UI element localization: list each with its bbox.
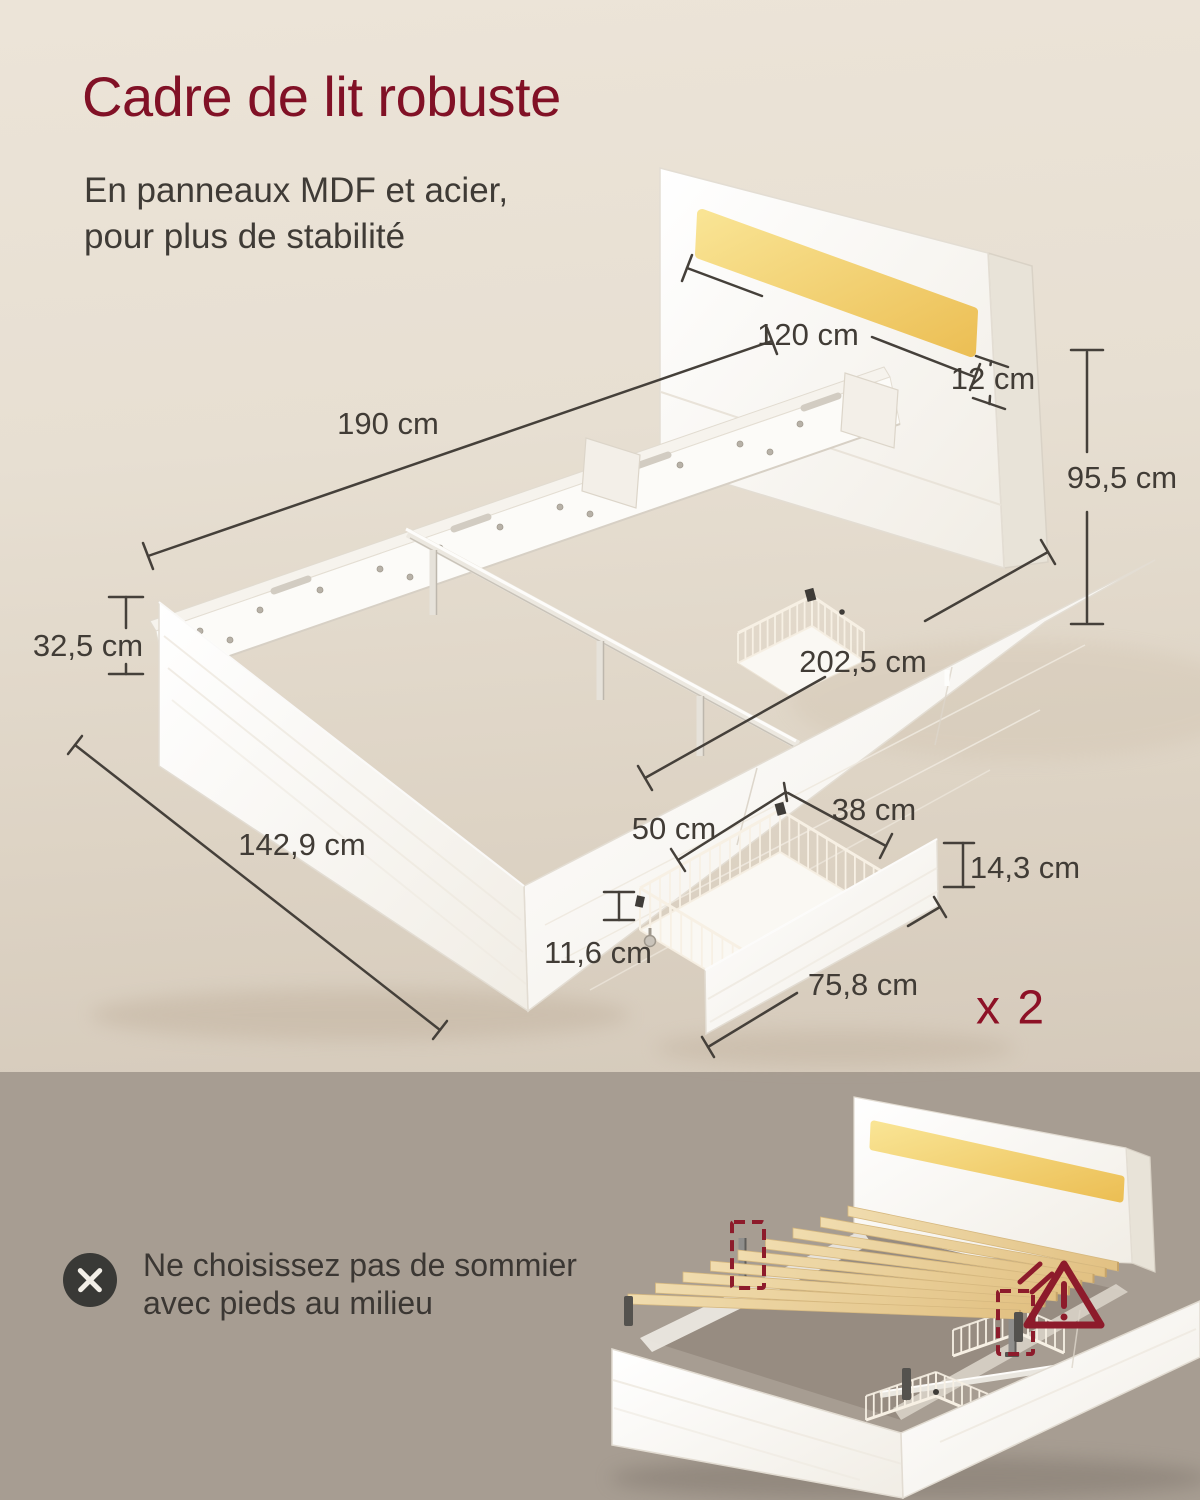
center-rail	[406, 529, 800, 756]
center-rail-leg	[433, 550, 704, 756]
product-infographic: Cadre de lit robuste En panneaux MDF et …	[0, 0, 1200, 1500]
exploded-bed-diagram	[68, 168, 1200, 1066]
bed-diagram-scene	[0, 0, 1200, 1500]
floor-shadow	[90, 989, 630, 1041]
basket-clip	[839, 609, 845, 615]
side-rail	[150, 367, 900, 678]
foot-board	[159, 602, 528, 1011]
slatted-bed-illustration	[610, 1097, 1200, 1500]
headboard	[660, 168, 1048, 568]
caster-wheel	[645, 936, 656, 947]
